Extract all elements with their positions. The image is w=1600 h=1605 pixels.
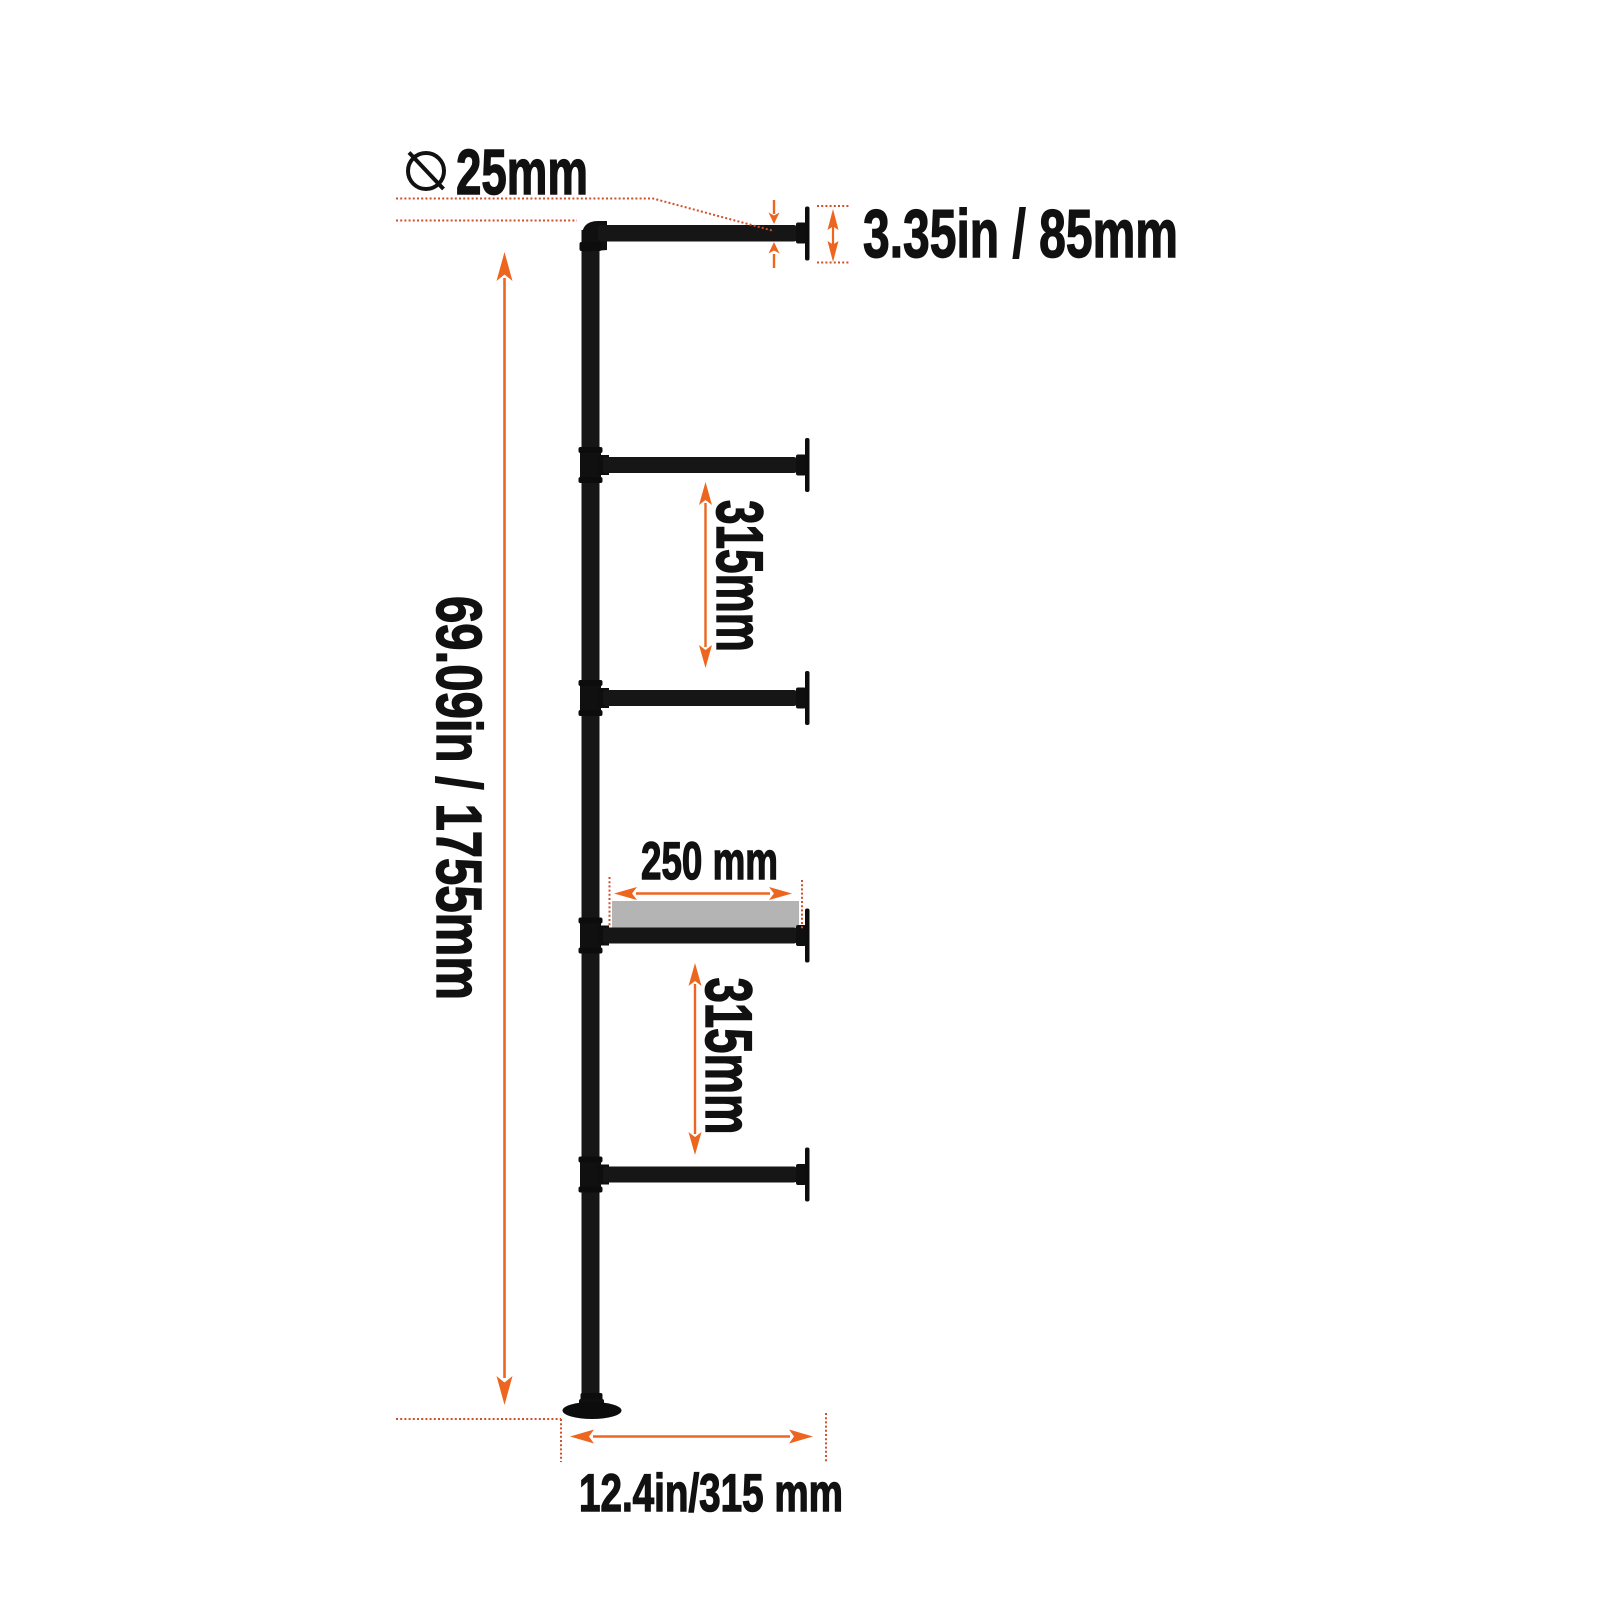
svg-text:3.35in / 85mm: 3.35in / 85mm (863, 196, 1178, 272)
svg-text:315mm: 315mm (692, 978, 766, 1135)
svg-text:250 mm: 250 mm (641, 832, 778, 891)
svg-text:69.09in / 1755mm: 69.09in / 1755mm (423, 596, 495, 1000)
svg-text:315mm: 315mm (703, 500, 777, 652)
svg-text:25mm: 25mm (456, 136, 588, 208)
svg-text:12.4in/315 mm: 12.4in/315 mm (579, 1464, 843, 1523)
